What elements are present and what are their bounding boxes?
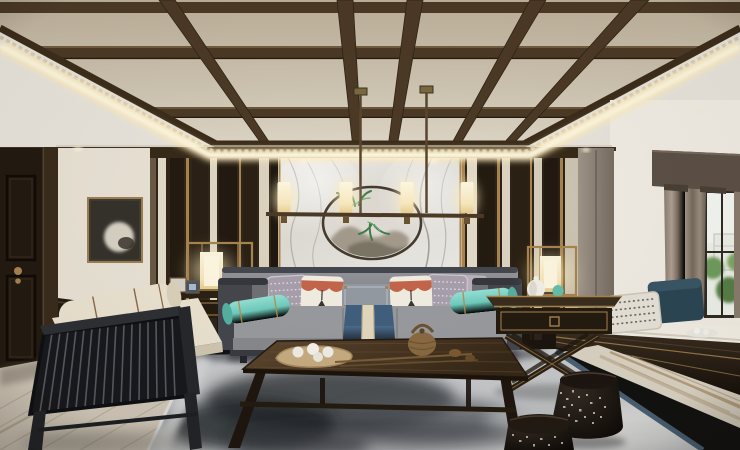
scene-canvas [0, 0, 740, 450]
vignette-overlay [0, 0, 740, 450]
living-room-rendering [0, 0, 740, 450]
